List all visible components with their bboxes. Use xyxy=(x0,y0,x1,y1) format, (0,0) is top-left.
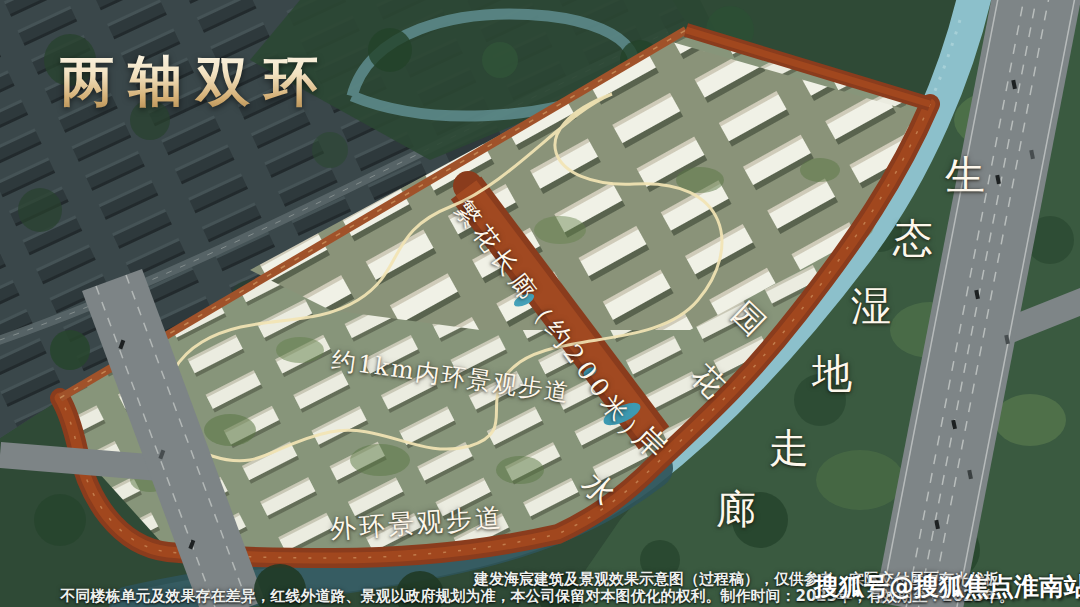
wetland-char: 湿 xyxy=(851,279,891,334)
wetland-char: 走 xyxy=(769,421,809,476)
page-title: 两轴双环 xyxy=(60,46,332,119)
aerial-masterplan-image: 两轴双环 繁花长廊（约200米） 约1km内环景观步道 外环景观步道 水 岸 花… xyxy=(0,0,1080,607)
wetland-char: 生 xyxy=(945,148,985,203)
wetland-char: 态 xyxy=(893,211,933,266)
wetland-char: 地 xyxy=(812,346,852,401)
watermark-text: 搜狐号@搜狐焦点淮南站 xyxy=(814,570,1080,603)
wetland-char: 廊 xyxy=(716,482,756,537)
